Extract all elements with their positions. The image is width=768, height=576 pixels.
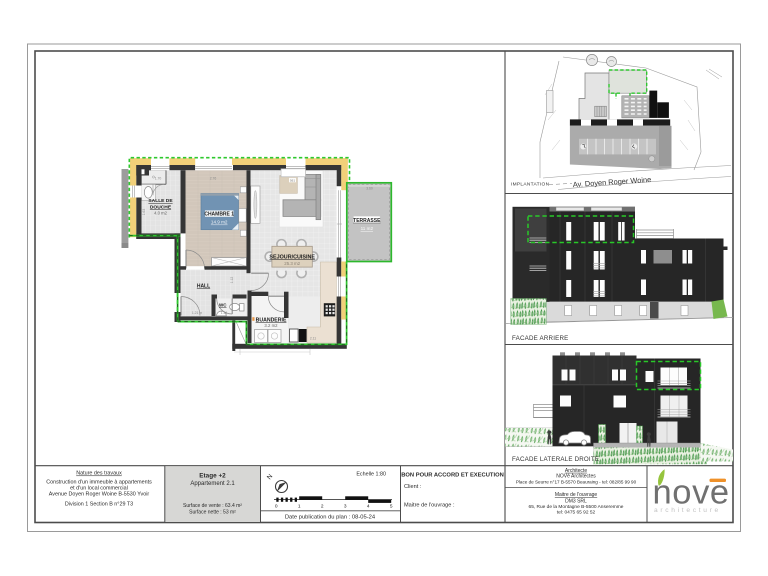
svg-text:Etage +2: Etage +2 (199, 473, 226, 480)
svg-text:FACADE LATERALE DROITE: FACADE LATERALE DROITE (512, 456, 599, 463)
svg-text:1.63: 1.63 (142, 209, 146, 216)
svg-text:FACADE ARRIERE: FACADE ARRIERE (512, 335, 568, 342)
svg-text:SEJOUR/CUISINE: SEJOUR/CUISINE (269, 254, 315, 260)
svg-text:1.70: 1.70 (155, 177, 162, 181)
svg-text:Client :: Client : (404, 484, 422, 490)
svg-text:Appartement 2.1: Appartement 2.1 (190, 481, 235, 487)
svg-text:4.0 m2: 4.0 m2 (154, 211, 167, 216)
svg-text:tel: 0475 65 92 52: tel: 0475 65 92 52 (557, 510, 596, 516)
svg-text:14.9 m2: 14.9 m2 (211, 220, 228, 225)
svg-text:Maitre de l'ouvrage: Maitre de l'ouvrage (555, 492, 598, 498)
svg-text:HALL: HALL (197, 284, 210, 290)
svg-text:CHAMBRE 1: CHAMBRE 1 (204, 212, 234, 218)
svg-text:5: 5 (390, 504, 393, 510)
svg-text:DM3 SRL: DM3 SRL (565, 498, 587, 504)
svg-text:1.21 m: 1.21 m (192, 311, 203, 315)
svg-text:1.12: 1.12 (230, 277, 234, 284)
svg-text:Av. Doyen Roger Woine: Av. Doyen Roger Woine (573, 175, 652, 189)
svg-text:Date publication du plan : 08-: Date publication du plan : 08-05-24 (285, 515, 376, 521)
svg-text:0: 0 (275, 504, 278, 510)
svg-text:IMPLANTATION: IMPLANTATION (511, 182, 550, 188)
svg-text:2.76: 2.76 (210, 177, 217, 181)
svg-text:3.2 m2: 3.2 m2 (264, 323, 278, 328)
svg-text:Avenue Doyen Roger Woine B-553: Avenue Doyen Roger Woine B-5530 Yvoir (49, 492, 150, 498)
svg-text:Place de Seurre n°17 B-5570 Be: Place de Seurre n°17 B-5570 Beauraing - … (516, 479, 637, 484)
svg-text:11 m2: 11 m2 (361, 226, 374, 231)
svg-text:2: 2 (321, 504, 324, 510)
svg-text:SALLE DE: SALLE DE (148, 198, 173, 204)
svg-text:1: 1 (298, 504, 301, 510)
svg-text:Surface nette : 53 m²: Surface nette : 53 m² (189, 510, 236, 516)
svg-text:Echelle 1:80: Echelle 1:80 (356, 472, 386, 478)
svg-text:3.60: 3.60 (366, 187, 373, 191)
svg-text:1.46: 1.46 (221, 311, 228, 315)
svg-text:N: N (266, 473, 275, 481)
svg-text:BON POUR ACCORD ET EXECUTION: BON POUR ACCORD ET EXECUTION (401, 472, 504, 478)
svg-text:561: 561 (290, 178, 295, 182)
svg-text:TERRASSE: TERRASSE (353, 218, 381, 224)
svg-text:2.11: 2.11 (310, 336, 316, 340)
svg-text:65, Rue de la Montagne B-5500: 65, Rue de la Montagne B-5500 Anseremme (529, 504, 624, 510)
svg-text:Surface de vente : 63.4 m²: Surface de vente : 63.4 m² (183, 503, 242, 509)
svg-text:Division 1 Section B n°29 T3: Division 1 Section B n°29 T3 (65, 502, 133, 508)
svg-text:4: 4 (367, 504, 370, 510)
svg-text:3: 3 (344, 504, 347, 510)
svg-text:Nature des travaux: Nature des travaux (76, 471, 122, 477)
svg-text:architecture: architecture (654, 507, 721, 514)
svg-text:25.3 m2: 25.3 m2 (284, 261, 300, 266)
svg-text:WC: WC (219, 303, 227, 308)
svg-text:Maitre de l'ouvrage :: Maitre de l'ouvrage : (404, 503, 455, 509)
